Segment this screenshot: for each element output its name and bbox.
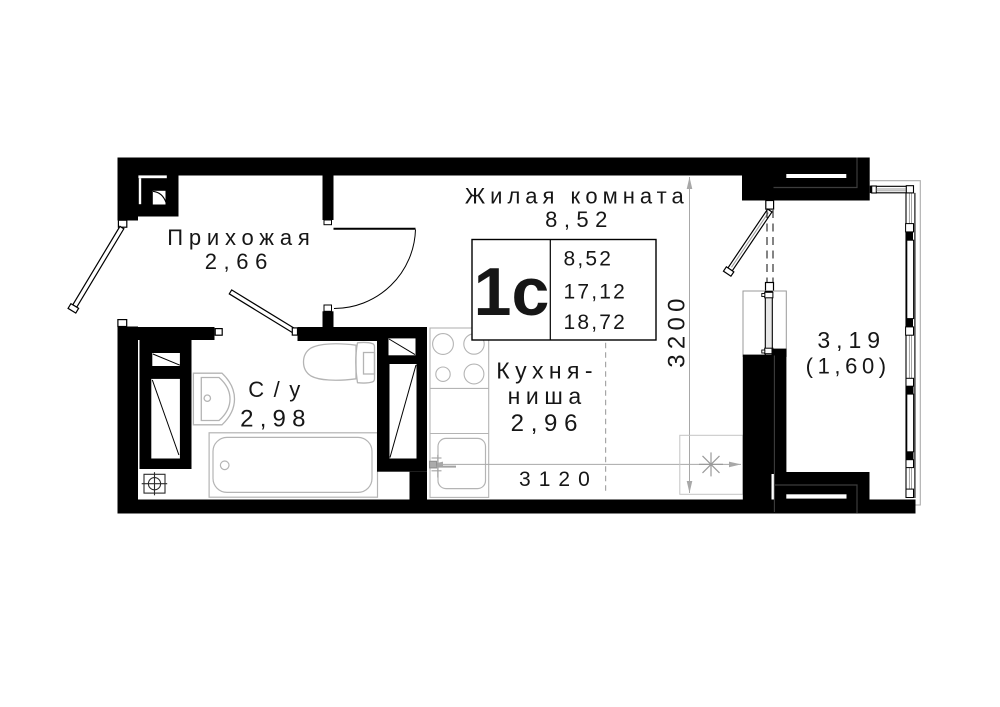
- svg-text:С/у: С/у: [248, 377, 310, 402]
- svg-text:17,12: 17,12: [564, 280, 628, 303]
- svg-text:8,52: 8,52: [545, 207, 614, 232]
- svg-text:1с: 1с: [474, 254, 550, 330]
- svg-text:3,19: 3,19: [817, 327, 886, 353]
- svg-text:Кухня-: Кухня-: [496, 358, 598, 384]
- svg-text:18,72: 18,72: [564, 311, 628, 334]
- svg-text:(1,60): (1,60): [806, 353, 891, 378]
- svg-text:3120: 3120: [519, 468, 598, 491]
- svg-text:2,66: 2,66: [205, 249, 274, 274]
- svg-text:2,98: 2,98: [240, 405, 312, 432]
- svg-text:Прихожая: Прихожая: [167, 225, 315, 250]
- svg-text:ниша: ниша: [508, 383, 587, 409]
- svg-text:3200: 3200: [664, 293, 691, 368]
- svg-text:2,96: 2,96: [511, 410, 585, 437]
- svg-text:8,52: 8,52: [564, 247, 614, 270]
- svg-text:Жилая комната: Жилая комната: [465, 183, 689, 208]
